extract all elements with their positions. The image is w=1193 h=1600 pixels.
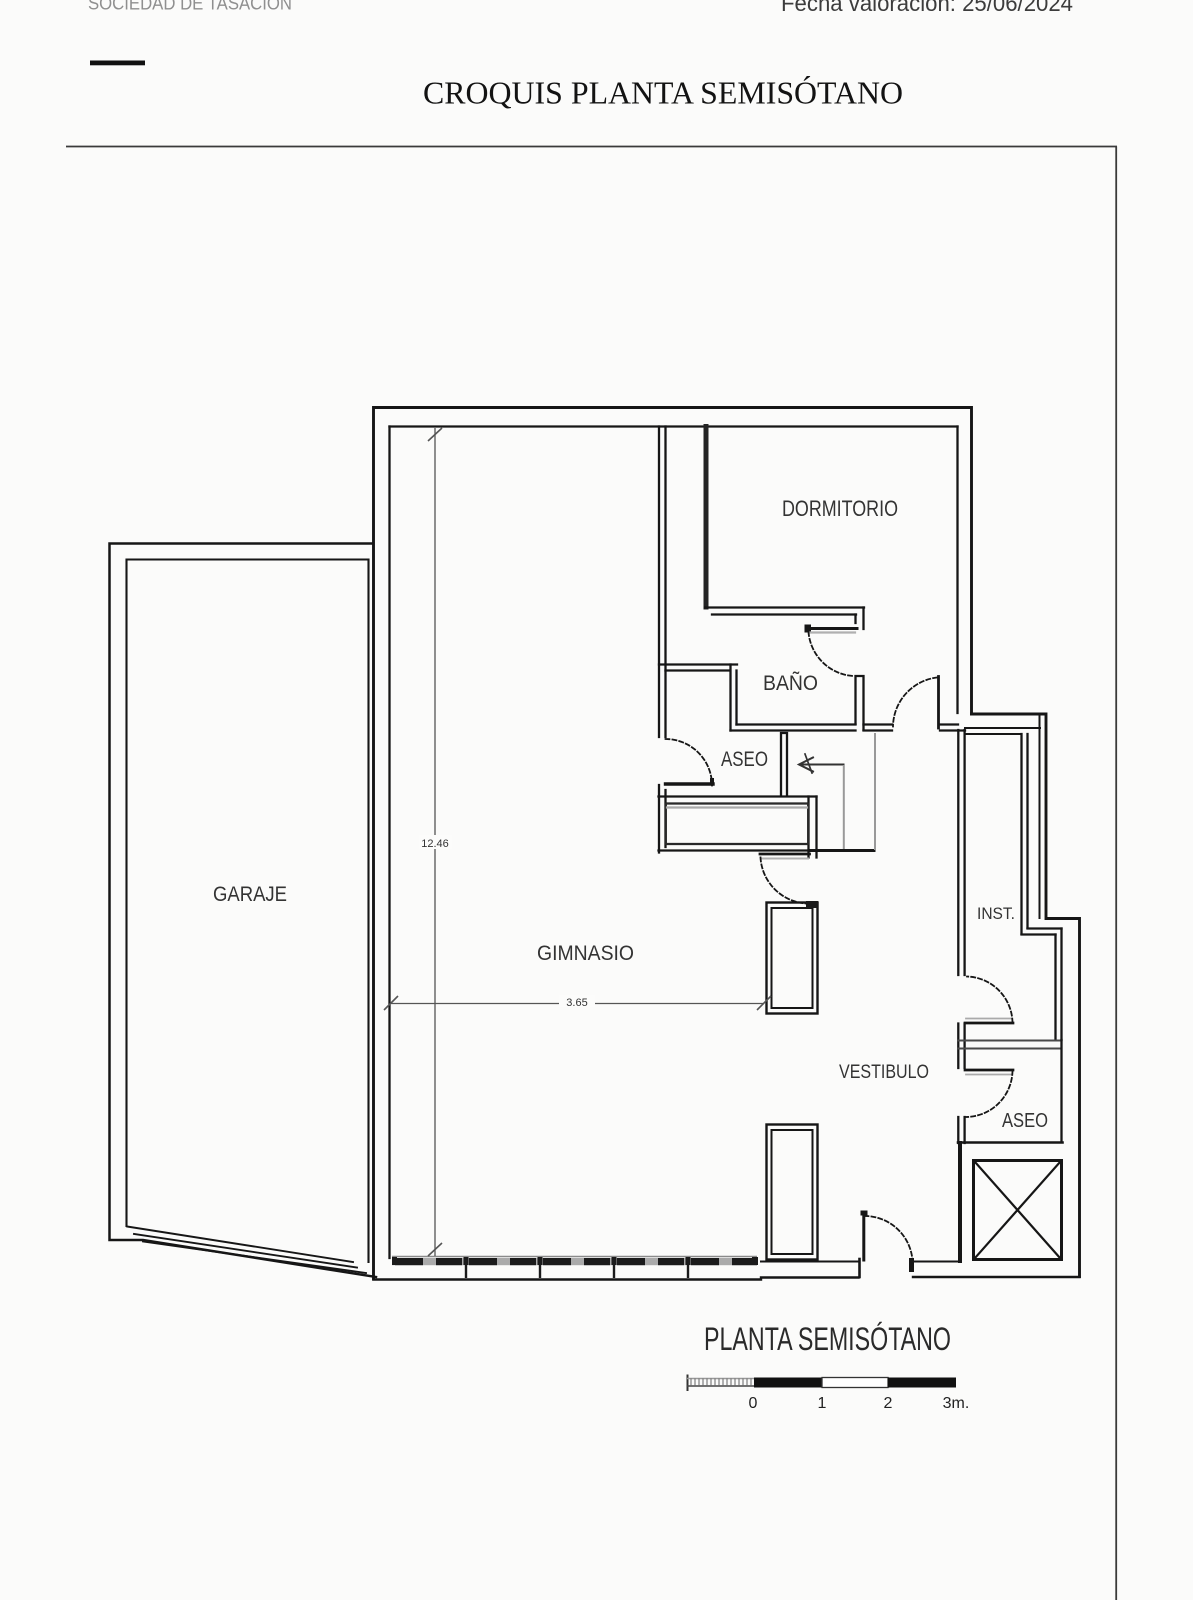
svg-text:CROQUIS PLANTA SEMISÓTANO: CROQUIS PLANTA SEMISÓTANO bbox=[423, 75, 903, 111]
svg-text:BAÑO: BAÑO bbox=[763, 671, 818, 695]
svg-text:DORMITORIO: DORMITORIO bbox=[782, 496, 898, 521]
svg-text:2: 2 bbox=[884, 1395, 893, 1412]
svg-text:3.65: 3.65 bbox=[566, 997, 587, 1009]
svg-text:GIMNASIO: GIMNASIO bbox=[537, 942, 634, 965]
svg-text:1: 1 bbox=[818, 1395, 827, 1412]
svg-text:Fecha valoración: 25/06/2024: Fecha valoración: 25/06/2024 bbox=[781, 0, 1073, 16]
svg-text:INST.: INST. bbox=[977, 904, 1015, 923]
svg-text:12.46: 12.46 bbox=[421, 838, 449, 850]
svg-text:ASEO: ASEO bbox=[721, 748, 768, 771]
svg-text:PLANTA SEMISÓTANO: PLANTA SEMISÓTANO bbox=[704, 1321, 951, 1357]
svg-text:VESTIBULO: VESTIBULO bbox=[839, 1062, 929, 1083]
svg-text:ASEO: ASEO bbox=[1002, 1110, 1048, 1132]
svg-text:3m.: 3m. bbox=[943, 1395, 970, 1412]
svg-text:GARAJE: GARAJE bbox=[213, 883, 287, 906]
svg-text:0: 0 bbox=[749, 1395, 758, 1412]
svg-text:SOCIEDAD DE TASACIÓN: SOCIEDAD DE TASACIÓN bbox=[88, 0, 292, 14]
